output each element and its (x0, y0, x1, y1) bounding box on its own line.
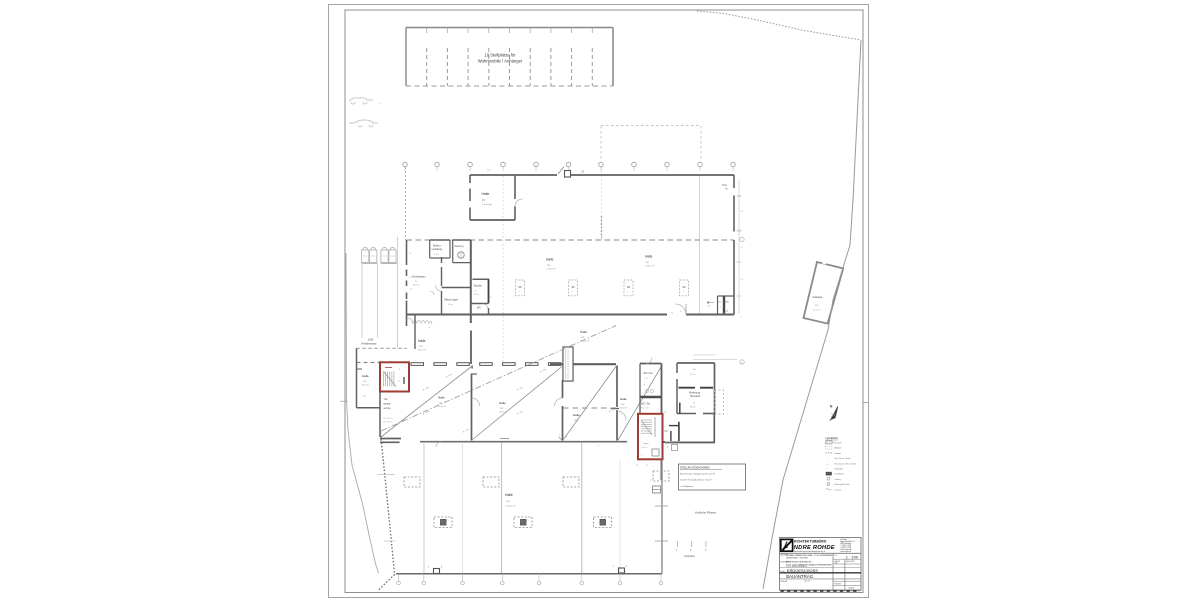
svg-text:Treppe: Treppe (643, 443, 649, 445)
svg-text:WC / Du: WC / Du (644, 372, 654, 375)
svg-text:20-015: 20-015 (849, 587, 855, 589)
svg-text:EG 12,2 m²: EG 12,2 m² (384, 421, 394, 424)
svg-text:Verladerampe: Verladerampe (361, 343, 377, 346)
svg-text:96,2 m²: 96,2 m² (620, 407, 627, 410)
svg-text:WC / Du: WC / Du (641, 403, 651, 406)
svg-text:s: s (659, 477, 660, 479)
svg-text:u: u (641, 455, 642, 457)
svg-text:Tief-: Tief- (384, 399, 389, 401)
svg-text:Wohnmobile / Anhänger: Wohnmobile / Anhänger (478, 59, 523, 64)
svg-text:a: a (741, 317, 742, 319)
svg-text:s: s (489, 483, 490, 485)
svg-text:7a: 7a (671, 313, 673, 315)
svg-text:220,4 m²: 220,4 m² (438, 405, 446, 408)
svg-text:Wohnung: Wohnung (689, 391, 701, 395)
svg-text:Heizung 80 l/Tank: Heizung 80 l/Tank (835, 484, 850, 486)
svg-text:STELLPLATZNACHWEIS: STELLPLATZNACHWEIS (680, 465, 710, 469)
svg-text:84359 Simbach: 84359 Simbach (841, 543, 852, 545)
svg-text:102,5 m²: 102,5 m² (418, 349, 426, 352)
svg-text:s: s (410, 483, 411, 485)
svg-text:4%: 4% (409, 277, 412, 279)
svg-text:1,9: 1,9 (719, 307, 721, 309)
svg-text:LKW: LKW (368, 339, 374, 342)
svg-text:Halle: Halle (645, 255, 653, 259)
svg-text:5,2: 5,2 (741, 247, 743, 249)
svg-text:30,2 m²: 30,2 m² (362, 384, 369, 387)
svg-text:111,64 m² (Kzo-Nutzfläche / 40: 111,64 m² (Kzo-Nutzfläche / 40 m² (680, 479, 712, 482)
svg-text:Bestand: Bestand (835, 442, 842, 445)
svg-text:PROJEKT: PROJEKT (835, 583, 842, 585)
svg-text:6: 6 (613, 566, 614, 568)
svg-text:Lüftung: Lüftung (835, 478, 841, 481)
svg-text:4,0: 4,0 (410, 289, 412, 291)
svg-text:9,6 m²: 9,6 m² (448, 303, 453, 306)
svg-text:F 90 Wand: F 90 Wand (835, 474, 844, 476)
svg-text:LEGENDE: LEGENDE (826, 436, 839, 440)
svg-text:Halle: Halle (505, 493, 513, 497)
svg-text:Halle: Halle (573, 413, 580, 417)
svg-text:12,2 m²: 12,2 m² (690, 373, 696, 376)
svg-text:58,6 m²: 58,6 m² (690, 406, 696, 409)
svg-text:28,1 m²: 28,1 m² (413, 284, 419, 287)
svg-text:5: 5 (598, 446, 599, 448)
svg-text:Technikraum: Technikraum (412, 276, 426, 279)
svg-text:1 : 100: 1 : 100 (846, 554, 859, 559)
svg-text:Rev. Datum / Rev. Inhalte: Rev. Datum / Rev. Inhalte (835, 462, 856, 465)
svg-text:RwA oben: RwA oben (835, 468, 844, 471)
svg-text:4: 4 (680, 311, 681, 313)
svg-text:aufzug: aufzug (384, 408, 392, 410)
svg-text:GEZ.: GEZ. (835, 563, 839, 565)
svg-text:a: a (628, 291, 629, 293)
svg-text:Berechnung: 1 Stellplatz je 30: Berechnung: 1 Stellplatz je 30 - 40 m² (680, 473, 715, 476)
svg-text:44: 44 (665, 412, 667, 414)
svg-text:2,5 m² qm: 2,5 m² qm (482, 203, 492, 206)
svg-text:25: 25 (475, 291, 477, 293)
svg-text:4%: 4% (409, 253, 412, 255)
svg-text:RCHITEKTURBÜRO: RCHITEKTURBÜRO (794, 539, 827, 544)
svg-text:31: 31 (415, 281, 417, 283)
svg-text:a: a (683, 291, 684, 293)
svg-text:Halle: Halle (499, 401, 506, 405)
svg-text:Halle: Halle (482, 192, 490, 196)
svg-text:s: s (569, 483, 570, 485)
svg-text:Abbruch: Abbruch (835, 447, 842, 450)
svg-text:ERDGESCHOSS: ERDGESCHOSS (787, 568, 818, 573)
svg-text:6,4: 6,4 (741, 279, 743, 281)
svg-text:2: 2 (428, 567, 429, 569)
svg-text:75: 75 (646, 465, 648, 467)
svg-text:Stellplätze: Stellplätze (684, 555, 696, 558)
svg-text:201: 201 (363, 396, 366, 398)
svg-text:23: 23 (581, 170, 585, 174)
svg-text:Dusche: Dusche (474, 285, 483, 288)
svg-text:ERWEITERUNG LAGERHALLEN: ERWEITERUNG LAGERHALLEN (786, 561, 812, 564)
svg-text:Leuchte: Leuchte (835, 488, 842, 491)
svg-text:verteilung: verteilung (432, 248, 443, 251)
svg-text:2,1 m²: 2,1 m² (434, 253, 439, 256)
svg-text:10 Stellplätze für: 10 Stellplätze für (484, 53, 516, 58)
svg-text:F: F (559, 435, 560, 437)
svg-text:2021-04: 2021-04 (804, 581, 810, 583)
svg-text:Bestand: Bestand (691, 394, 701, 398)
svg-text:Halle: Halle (362, 374, 369, 378)
svg-text:garage: garage (384, 403, 392, 406)
svg-text:‹ 1: ‹ 1 (378, 101, 382, 105)
svg-text:04.05.2021: 04.05.2021 (846, 561, 855, 563)
svg-text:a: a (519, 291, 520, 293)
svg-text:Hofläche Pflaster: Hofläche Pflaster (695, 511, 716, 515)
svg-text:4,10 m²: 4,10 m² (642, 446, 648, 449)
svg-text:+ + +: + + + (826, 463, 830, 465)
svg-text:28,3 m²: 28,3 m² (813, 309, 820, 312)
svg-text:= 3 Stellplätze: = 3 Stellplätze (680, 485, 694, 488)
svg-text:Fl.Nr. 7a/2: Fl.Nr. 7a/2 (641, 407, 649, 410)
svg-text:FL.NR. 1234/5 GEMARKUNG SIMBAC: FL.NR. 1234/5 GEMARKUNG SIMBACH GEWERBEG… (786, 563, 832, 566)
svg-text:Öltank-Lager: Öltank-Lager (444, 299, 458, 302)
svg-text:WC: WC (726, 302, 730, 304)
svg-text:1 103,2 m²: 1 103,2 m² (645, 265, 655, 268)
svg-text:Halle: Halle (580, 330, 587, 334)
svg-text:8: 8 (828, 484, 829, 486)
svg-text:26: 26 (650, 480, 652, 482)
svg-text:8,5: 8,5 (741, 211, 743, 213)
svg-text:1 216,4 m²: 1 216,4 m² (546, 268, 556, 271)
svg-text:Halle: Halle (418, 339, 426, 343)
svg-text:4: 4 (626, 566, 627, 568)
svg-text:17: 17 (398, 381, 400, 383)
svg-text:1,94: 1,94 (707, 306, 710, 308)
svg-text:Halle: Halle (546, 258, 554, 262)
svg-text:5,0: 5,0 (645, 378, 647, 380)
svg-text:Halle: Halle (620, 397, 627, 401)
svg-text:Flur: Flur (693, 369, 696, 371)
svg-text:1 042,0 m²: 1 042,0 m² (505, 505, 515, 508)
svg-text:Rev. Datum / Zeich.: Rev. Datum / Zeich. (835, 457, 852, 460)
svg-text:UG 12,2 m²: UG 12,2 m² (384, 417, 394, 420)
svg-text:BAUANTRAG: BAUANTRAG (786, 574, 813, 579)
svg-text:Neubau: Neubau (835, 453, 842, 455)
svg-text:26: 26 (636, 465, 638, 467)
svg-text:T. 08571 / 2345: T. 08571 / 2345 (841, 545, 852, 547)
svg-text:Garage: Garage (813, 295, 823, 299)
svg-text:a: a (572, 291, 573, 293)
svg-text:NDRE ROHDE: NDRE ROHDE (794, 545, 836, 551)
svg-text:WC: WC (477, 307, 481, 310)
svg-text:Heizung: Heizung (455, 245, 464, 248)
svg-text:Fl.Nr.: Fl.Nr. (722, 184, 728, 187)
svg-text:F. 08571 / 2346: F. 08571 / 2346 (841, 547, 852, 549)
svg-text:Halle: Halle (438, 396, 445, 400)
svg-text:60: 60 (693, 403, 695, 405)
svg-text:4,2 m²: 4,2 m² (474, 293, 479, 296)
